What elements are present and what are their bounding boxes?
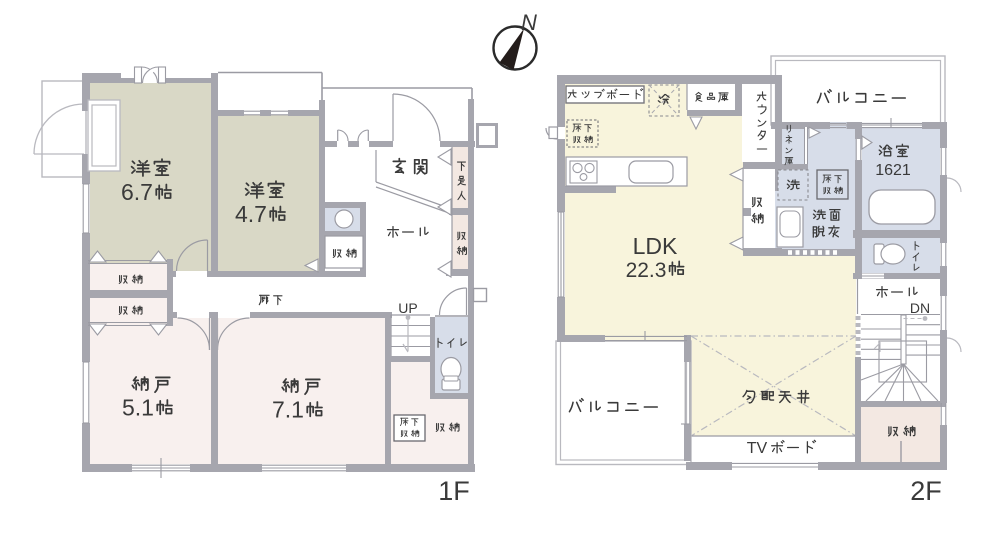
- svg-text:N: N: [521, 10, 537, 35]
- svg-text:5.1: 5.1: [122, 395, 154, 421]
- svg-text:DN: DN: [910, 300, 930, 316]
- svg-text:1621: 1621: [875, 162, 911, 179]
- svg-text:UP: UP: [398, 300, 417, 316]
- svg-text:LDK: LDK: [633, 233, 678, 259]
- svg-text:1F: 1F: [438, 476, 470, 506]
- svg-text:22.3: 22.3: [626, 259, 667, 282]
- svg-text:TV: TV: [747, 440, 768, 457]
- svg-text:2F: 2F: [910, 476, 942, 506]
- svg-text:7.1: 7.1: [272, 397, 304, 423]
- svg-text:4.7: 4.7: [235, 201, 267, 227]
- svg-text:6.7: 6.7: [121, 179, 153, 205]
